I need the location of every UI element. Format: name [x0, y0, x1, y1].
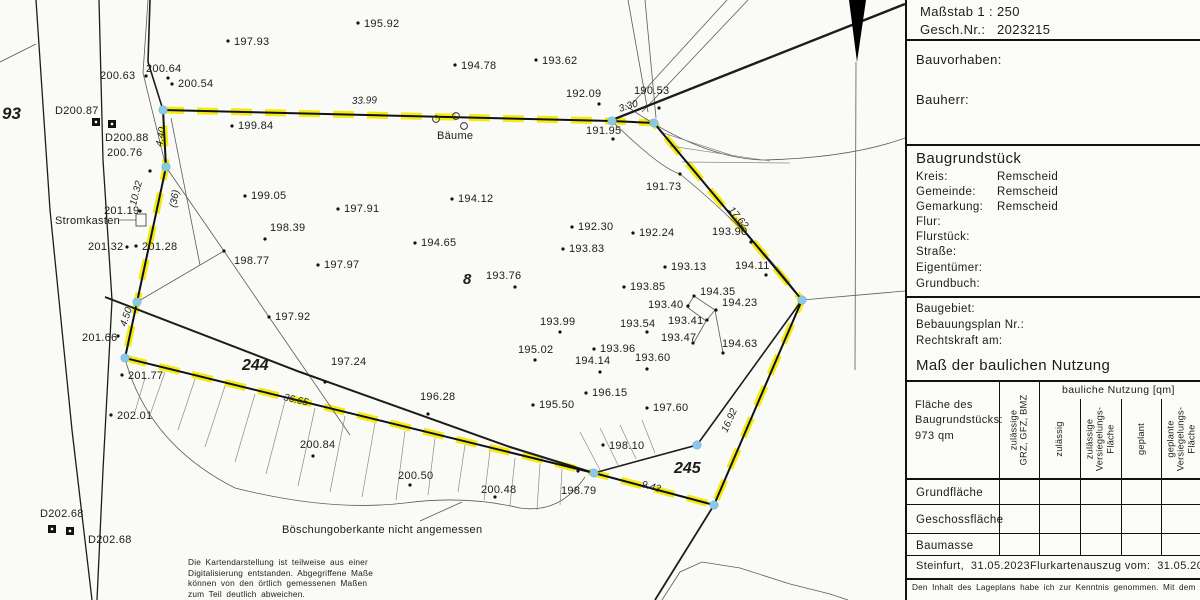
elevation-point [450, 197, 453, 200]
divider [907, 533, 1200, 534]
row-value: Remscheid [997, 201, 1058, 213]
elevation-label: 193.60 [635, 352, 670, 364]
measure-label: 9.43 [640, 479, 662, 495]
survey-marker-label: D200.88 [105, 132, 149, 144]
elevation-label: 200.63 [100, 70, 135, 82]
divider [907, 555, 1200, 556]
nutzung-title: Maß der baulichen Nutzung [916, 357, 1110, 374]
baugrundstueck-title: Baugrundstück [916, 150, 1021, 167]
elevation-point [764, 273, 767, 276]
row-geschossflaeche: Geschossfläche [916, 514, 1003, 526]
row-label: Gemarkung: [916, 201, 983, 213]
boundary-corner-point [650, 119, 658, 127]
divider [907, 380, 1200, 382]
elevation-label: 201.77 [128, 370, 163, 382]
elevation-point [323, 380, 326, 383]
elevation-point [453, 63, 456, 66]
north-arrow-icon [849, 0, 866, 62]
elevation-label: 198.39 [270, 222, 305, 234]
col-header-geplant: geplant [1136, 423, 1146, 455]
elevation-label: 198.79 [561, 485, 596, 497]
survey-marker-center [95, 121, 97, 123]
elevation-label: 200.84 [300, 439, 335, 451]
elevation-point [316, 263, 319, 266]
boundary-corner-point [590, 469, 598, 477]
elevation-label: 194.63 [722, 338, 757, 350]
file-number-value: 2023215 [997, 22, 1050, 37]
rechtskraft-label: Rechtskraft am: [916, 335, 1003, 347]
elevation-point [714, 308, 717, 311]
divider [907, 504, 1200, 505]
col-header-grz: zulässige GRZ, GFZ, BMZ [1009, 395, 1030, 466]
survey-marker-label: D202.68 [40, 508, 84, 520]
boundary-corner-point [121, 354, 129, 362]
map-annotation: Böschungoberkante nicht angemessen [282, 524, 482, 536]
table-vline [1161, 399, 1162, 555]
row-baumasse: Baumasse [916, 540, 974, 552]
bauvorhaben-label: Bauvorhaben: [916, 52, 1002, 67]
elevation-point [584, 391, 587, 394]
file-number-label: Gesch.Nr.: [920, 22, 985, 37]
elevation-label: 194.78 [461, 60, 496, 72]
map-disclaimer: Die Kartendarstellung ist teilweise aus … [188, 557, 373, 599]
elevation-point [243, 194, 246, 197]
survey-marker-label: D200.87 [55, 105, 99, 117]
boundary-corner-point [162, 163, 170, 171]
boundary-corner-point [608, 117, 616, 125]
row-grundflaeche: Grundfläche [916, 487, 983, 499]
row-label: Straße: [916, 246, 957, 258]
elevation-point [678, 172, 681, 175]
elevation-point [645, 367, 648, 370]
survey-marker-label: D202.68 [88, 534, 132, 546]
row-value: Remscheid [997, 186, 1058, 198]
area-cell: Fläche des Baugrundstücks: 973 qm [915, 398, 1003, 444]
elevation-label: 198.10 [609, 440, 644, 452]
map-annotation: Stromkasten [55, 215, 120, 227]
elevation-point [598, 370, 601, 373]
elevation-point [513, 285, 516, 288]
elevation-point [749, 240, 752, 243]
elevation-label: 200.54 [178, 78, 213, 90]
elevation-point [657, 106, 660, 109]
boundary-corner-point [159, 106, 167, 114]
elevation-point [533, 358, 536, 361]
elevation-label: 193.96 [600, 343, 635, 355]
elevation-label: 193.54 [620, 318, 655, 330]
scale-label: Maßstab 1 : 250 [920, 4, 1020, 19]
measure-label: (36) [168, 189, 182, 208]
elevation-label: 191.95 [586, 125, 621, 137]
elevation-point [645, 406, 648, 409]
bauherr-label: Bauherr: [916, 92, 969, 107]
row-value: Remscheid [997, 171, 1058, 183]
elevation-point [531, 403, 534, 406]
elevation-label: 201.28 [142, 241, 177, 253]
elevation-point [226, 39, 229, 42]
elevation-point [663, 265, 666, 268]
divider [907, 578, 1200, 580]
elevation-point [558, 330, 561, 333]
elevation-point [311, 454, 314, 457]
elevation-label: 199.05 [251, 190, 286, 202]
elevation-label: 197.91 [344, 203, 379, 215]
bebauungsplan-label: Bebauungsplan Nr.: [916, 319, 1024, 331]
elevation-label: 193.41 [668, 315, 703, 327]
parcel-number: 244 [241, 357, 269, 374]
row-label: Grundbuch: [916, 278, 980, 290]
col-header-gepl-versiegelung: geplante Versiegelungs- Fläche [1165, 407, 1196, 471]
elevation-point [125, 245, 128, 248]
elevation-label: 197.60 [653, 402, 688, 414]
elevation-point [166, 76, 169, 79]
elevation-label: 192.30 [578, 221, 613, 233]
elevation-point [611, 137, 614, 140]
tree-icon [461, 123, 468, 130]
col-group-header: bauliche Nutzung [qm] [1062, 384, 1175, 396]
elevation-point [601, 443, 604, 446]
row-label: Flurstück: [916, 231, 970, 243]
col-header-zulaessig: zulässig [1054, 421, 1064, 456]
elevation-point [705, 318, 708, 321]
elevation-label: 194.65 [421, 237, 456, 249]
parcel-number: 245 [673, 460, 702, 477]
survey-marker-center [69, 530, 71, 532]
elevation-point [721, 351, 724, 354]
elevation-point [356, 21, 359, 24]
elevation-label: 195.02 [518, 344, 553, 356]
table-vline [1121, 399, 1122, 555]
site-plan-map[interactable]: 195.92197.93194.78193.62192.09190.53191.… [0, 0, 905, 600]
elevation-label: 195.92 [364, 18, 399, 30]
elevation-label: 200.50 [398, 470, 433, 482]
measure-label: 36.65 [282, 392, 309, 408]
elevation-label: 197.93 [234, 36, 269, 48]
elevation-label: 195.50 [539, 399, 574, 411]
elevation-label: 199.84 [238, 120, 273, 132]
elevation-point [576, 469, 579, 472]
elevation-label: 193.85 [630, 281, 665, 293]
elevation-point [148, 169, 151, 172]
elevation-label: 196.15 [592, 387, 627, 399]
row-label: Eigentümer: [916, 262, 982, 274]
divider [907, 39, 1200, 41]
elevation-label: 197.97 [324, 259, 359, 271]
elevation-label: 202.01 [117, 410, 152, 422]
elevation-label: 200.48 [481, 484, 516, 496]
elevation-label: 193.83 [569, 243, 604, 255]
elevation-point [597, 102, 600, 105]
lageplan-page: 195.92197.93194.78193.62192.09190.53191.… [0, 0, 1200, 600]
elevation-point [230, 124, 233, 127]
elevation-label: 194.23 [722, 297, 757, 309]
elevation-point [134, 244, 137, 247]
elevation-point [222, 249, 225, 252]
elevation-point [622, 285, 625, 288]
elevation-point [631, 231, 634, 234]
elevation-point [561, 247, 564, 250]
survey-marker-center [51, 528, 53, 530]
col-header-zul-versiegelung: zulässige Versiegelungs- Fläche [1084, 407, 1115, 471]
elevation-label: 190.53 [634, 85, 669, 97]
elevation-label: 191.73 [646, 181, 681, 193]
divider [907, 144, 1200, 146]
elevation-point [408, 483, 411, 486]
elevation-label: 196.28 [420, 391, 455, 403]
elevation-label: 193.99 [540, 316, 575, 328]
elevation-point [426, 412, 429, 415]
elevation-label: 197.92 [275, 311, 310, 323]
boundary-corner-point [133, 298, 141, 306]
elevation-point [336, 207, 339, 210]
elevation-label: 193.76 [486, 270, 521, 282]
elevation-label: 194.12 [458, 193, 493, 205]
elevation-label: 192.09 [566, 88, 601, 100]
map-annotation: Bäume [437, 130, 473, 142]
elevation-point [570, 225, 573, 228]
elevation-label: 192.24 [639, 227, 674, 239]
measure-label: 10.32 [128, 179, 145, 206]
row-label: Flur: [916, 216, 941, 228]
elevation-point [267, 315, 270, 318]
elevation-point [592, 347, 595, 350]
parcel-number: 8 [463, 271, 472, 288]
survey-marker-center [111, 123, 113, 125]
elevation-point [686, 304, 689, 307]
elevation-point [120, 373, 123, 376]
elevation-point [692, 294, 695, 297]
acknowledgement-note: Den Inhalt des Lageplans habe ich zur Ke… [912, 583, 1200, 592]
title-block-panel: Maßstab 1 : 250 Gesch.Nr.: 2023215 Bauvo… [905, 0, 1200, 600]
elevation-point [170, 82, 173, 85]
elevation-point [263, 237, 266, 240]
elevation-label: 197.24 [331, 356, 366, 368]
elevation-label: 200.64 [146, 63, 181, 75]
elevation-label: 194.14 [575, 355, 610, 367]
elevation-label: 193.47 [661, 332, 696, 344]
boundary-corner-point [798, 296, 806, 304]
elevation-label: 201.66 [82, 332, 117, 344]
footer-place-date: Steinfurt, 31.05.2023 [916, 560, 1030, 572]
row-label: Kreis: [916, 171, 948, 183]
elevation-point [413, 241, 416, 244]
elevation-label: 193.13 [671, 261, 706, 273]
elevation-point [534, 58, 537, 61]
road-lines [36, 0, 905, 600]
boundary-corner-point [693, 441, 701, 449]
elevation-point [109, 413, 112, 416]
measure-label: 33.99 [352, 95, 378, 107]
elevation-label: 200.76 [107, 147, 142, 159]
elevation-label: 194.11 [735, 260, 770, 272]
elevation-label: 201.32 [88, 241, 123, 253]
parcel-number: 93 [2, 104, 21, 123]
baugebiet-label: Baugebiet: [916, 303, 975, 315]
elevation-point [645, 330, 648, 333]
table-vline [1039, 380, 1040, 555]
row-label: Gemeinde: [916, 186, 976, 198]
divider [907, 296, 1200, 298]
table-vline [1080, 399, 1081, 555]
divider [907, 478, 1200, 480]
elevation-label: 198.77 [234, 255, 269, 267]
elevation-label: 193.40 [648, 299, 683, 311]
elevation-label: 193.62 [542, 55, 577, 67]
footer-flurkarte-date: Flurkartenauszug vom: 31.05.2023 [1030, 560, 1200, 572]
boundary-corner-point [710, 501, 718, 509]
